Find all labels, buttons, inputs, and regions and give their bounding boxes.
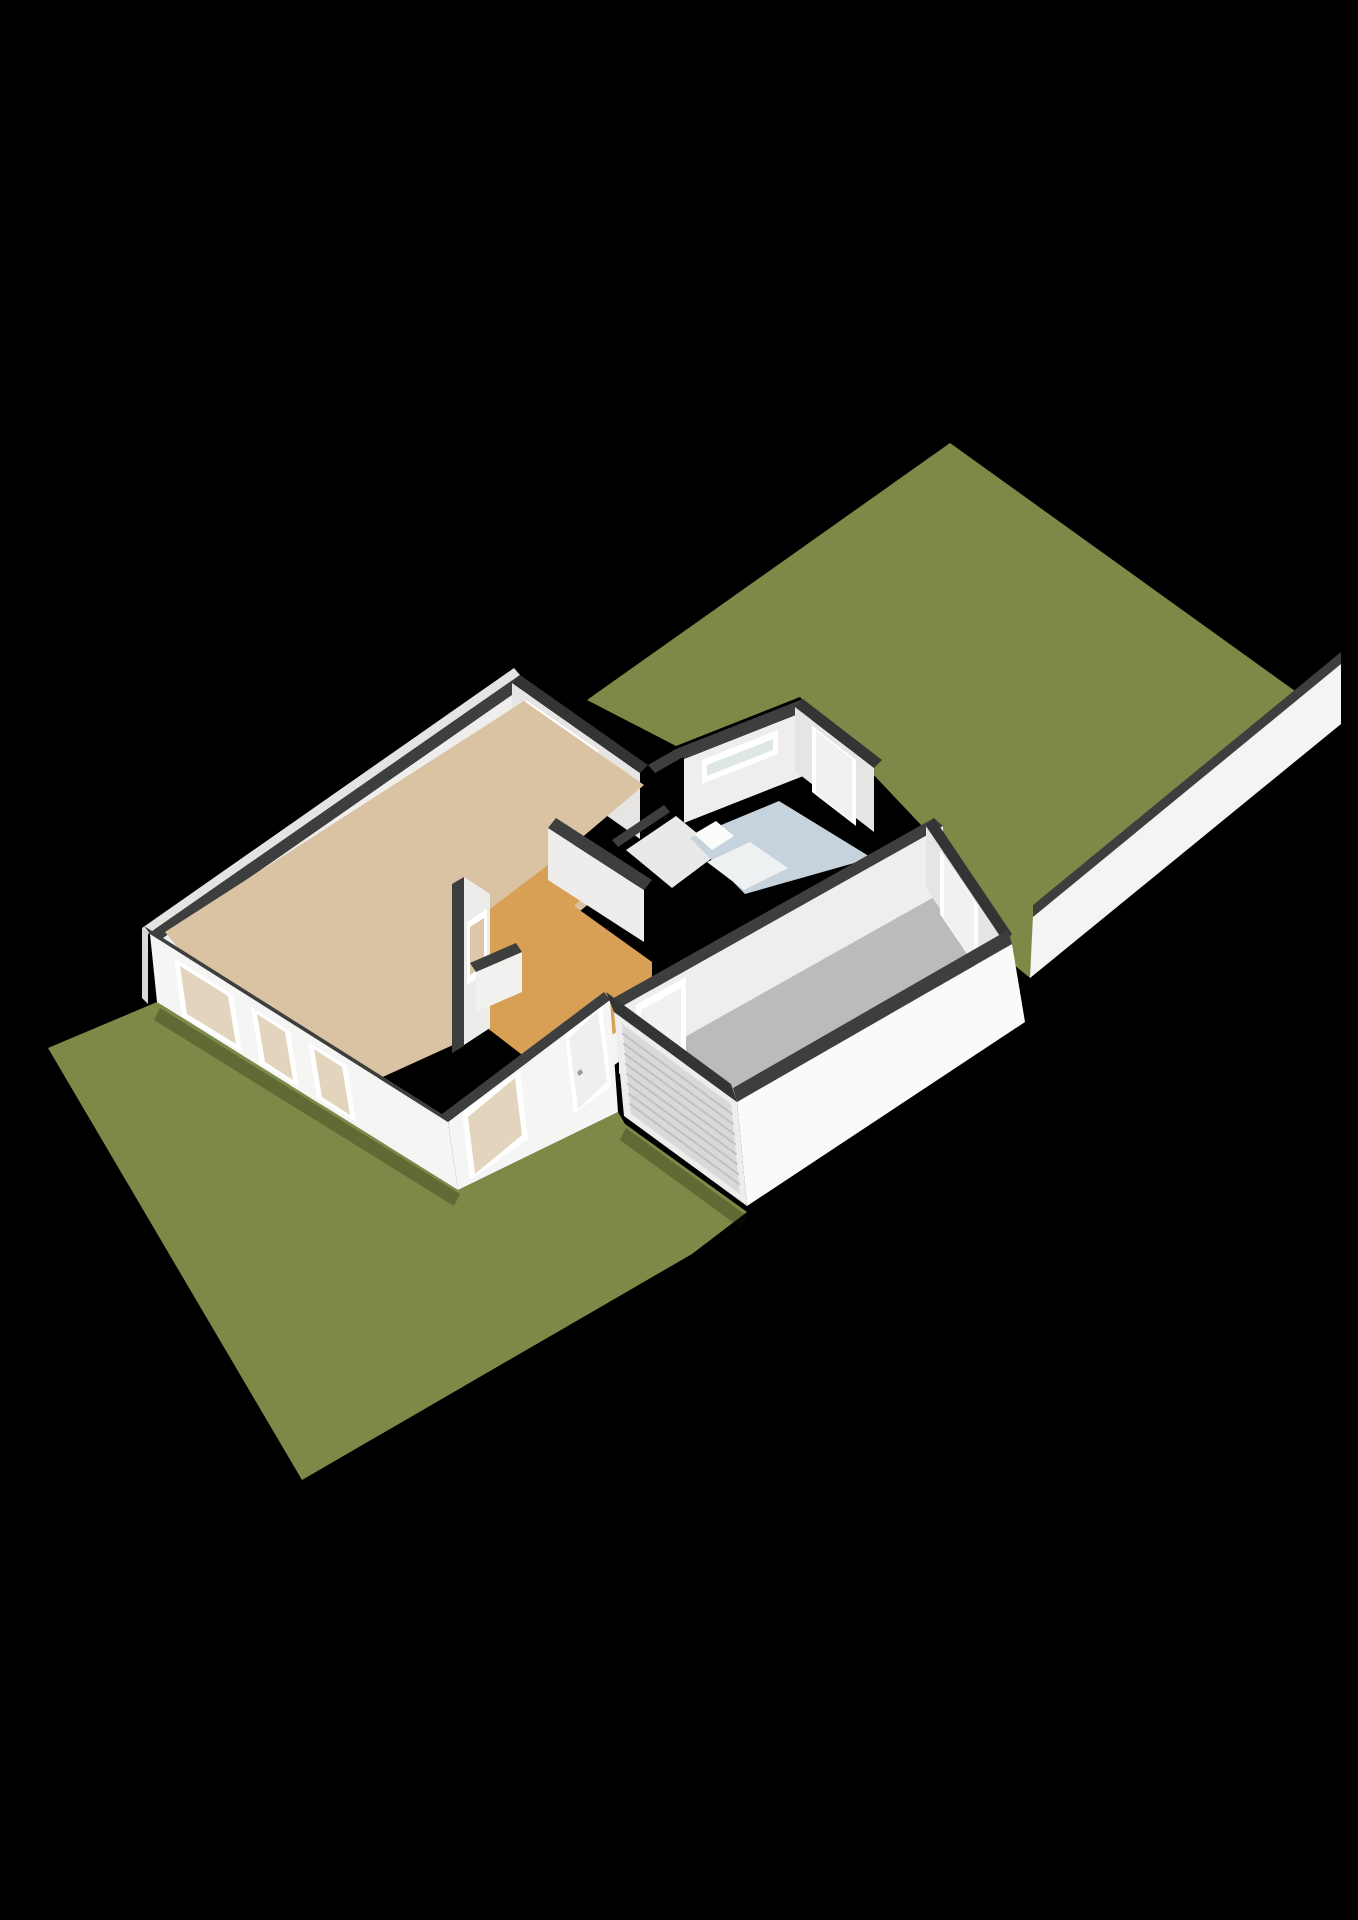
rear-left-wall-ext-side xyxy=(142,928,148,1004)
floorplan-svg xyxy=(0,0,1358,1920)
hall-partition-top xyxy=(452,877,464,1053)
floorplan-3d-render xyxy=(0,0,1358,1920)
rear-jog-wall-top xyxy=(648,749,683,773)
